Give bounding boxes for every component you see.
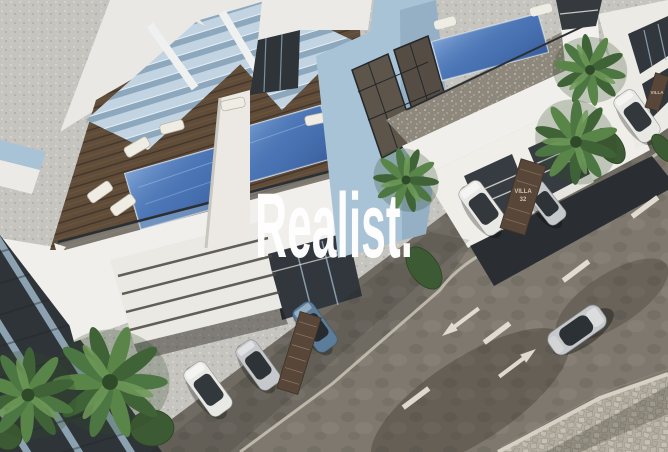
scene-svg: VILLA 32 VILLA Realist. (0, 0, 668, 452)
render-image: VILLA 32 VILLA Realist. (0, 0, 668, 452)
watermark-text: Realist. (255, 175, 413, 277)
villa-sign-text-line2: 32 (520, 197, 527, 203)
villa-sign-text-line1: VILLA (514, 189, 532, 195)
villa-sign-right-text: VILLA (651, 90, 665, 95)
